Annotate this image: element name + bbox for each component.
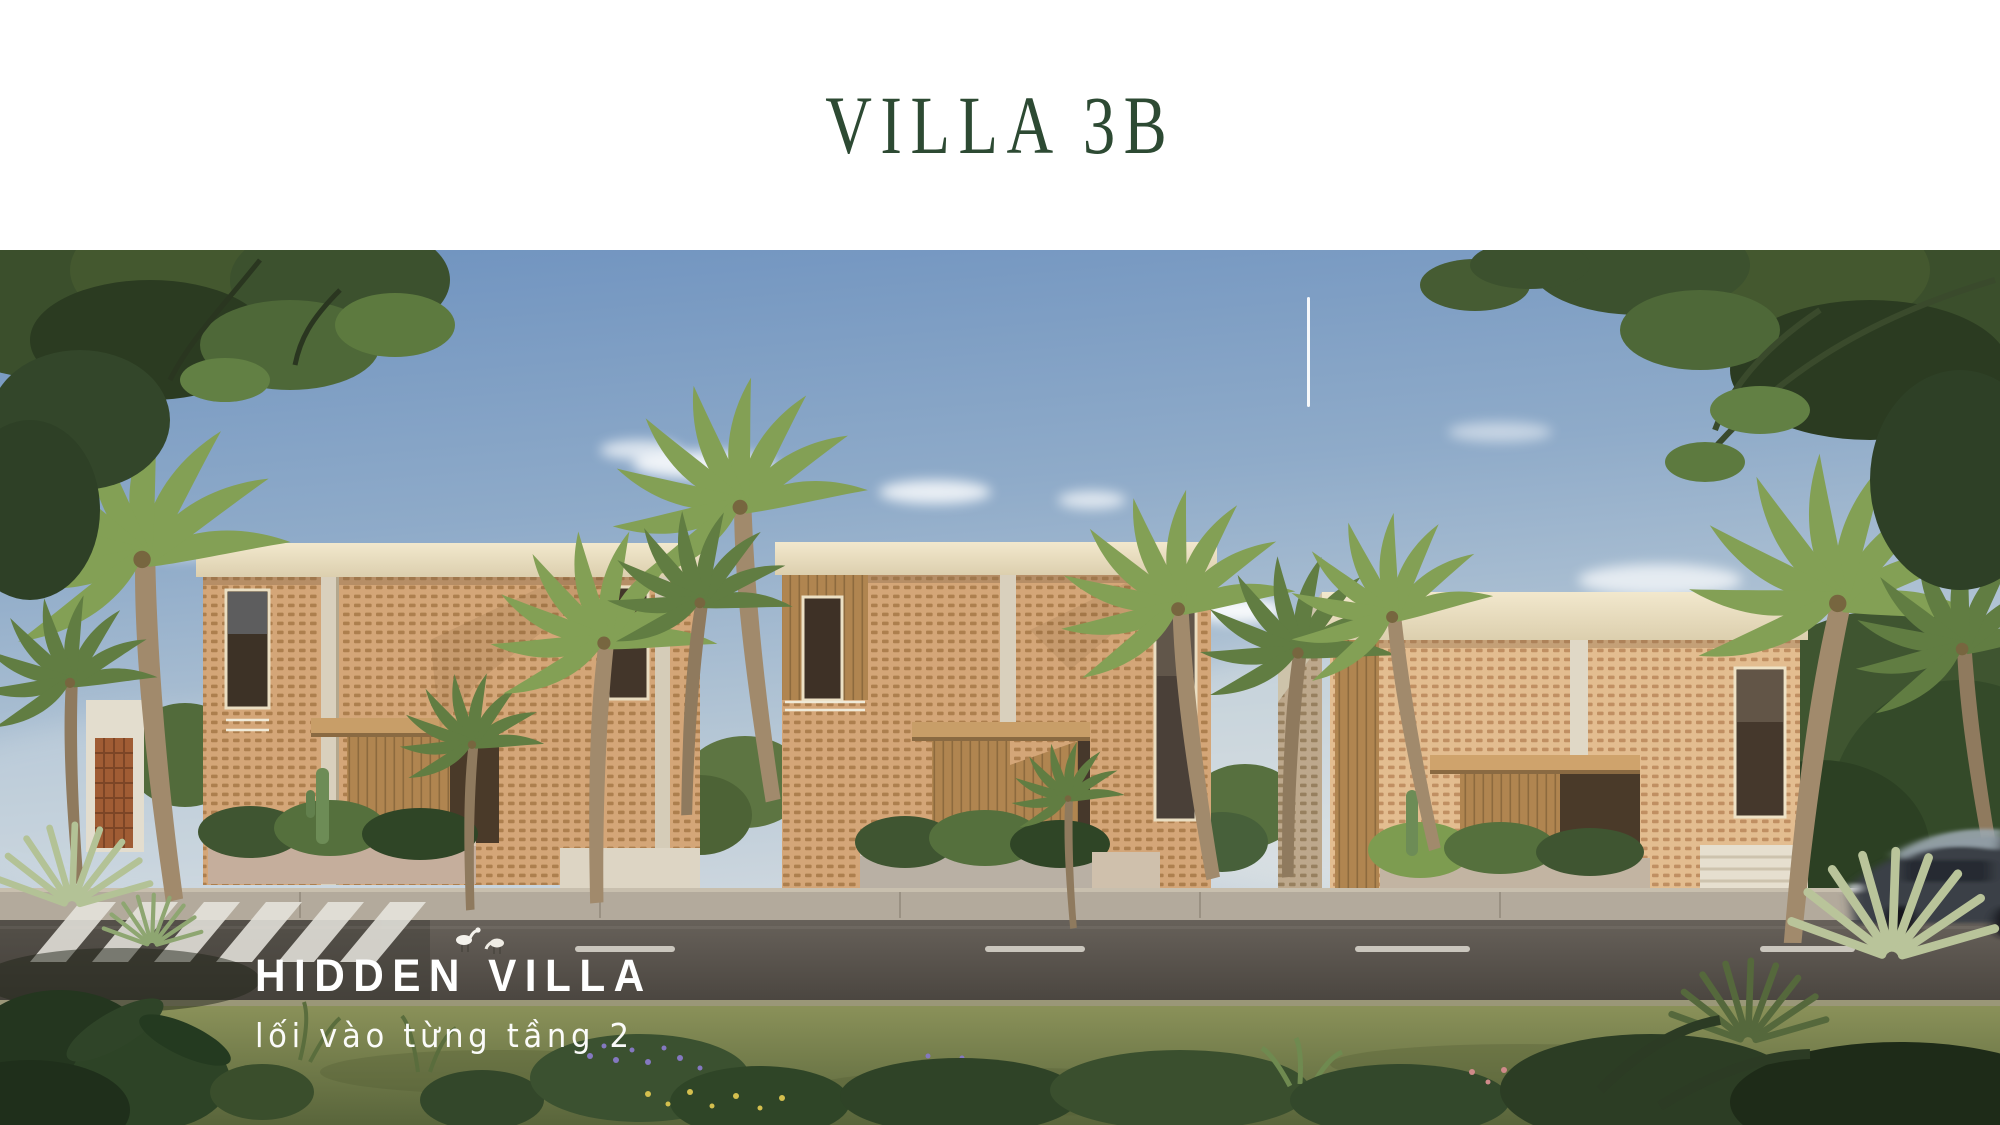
cactus — [1406, 790, 1418, 856]
vertical-divider-line — [1307, 297, 1310, 407]
villa-render-figure: HIDDEN VILLA lối vào từng tầng 2 — [0, 250, 2000, 1125]
villa-middle-pilaster — [1000, 575, 1016, 724]
page-title: VILLA 3B — [825, 77, 1175, 173]
villa-left-window-slot — [226, 590, 269, 730]
caption-title: HIDDEN VILLA — [255, 950, 653, 1002]
presentation-slide: VILLA 3B — [0, 0, 2000, 1125]
caption-block: HIDDEN VILLA lối vào từng tầng 2 — [255, 950, 678, 1055]
slide-header: VILLA 3B — [0, 0, 2000, 250]
neighbor-gate — [86, 700, 144, 852]
villa-right — [1278, 592, 1808, 896]
cactus — [316, 768, 329, 844]
caption-subtitle: lối vào từng tầng 2 — [255, 1016, 648, 1055]
villa-left-low-wall — [560, 848, 700, 888]
villa-middle-low-wall — [1092, 852, 1160, 892]
villa-right-window-slot — [1735, 668, 1785, 817]
villa-middle-wood-recess — [782, 575, 868, 710]
